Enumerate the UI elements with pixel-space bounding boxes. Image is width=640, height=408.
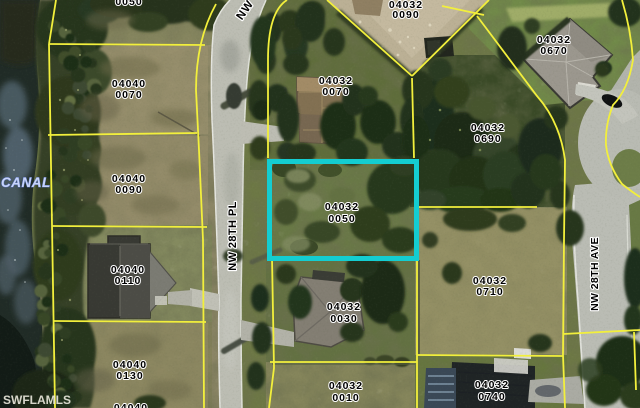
svg-text:04032: 04032	[327, 301, 361, 313]
svg-text:04032: 04032	[329, 380, 363, 392]
svg-text:0010: 0010	[332, 392, 359, 404]
svg-text:0740: 0740	[478, 391, 505, 403]
svg-text:0050: 0050	[115, 0, 142, 8]
svg-text:04040: 04040	[114, 402, 148, 408]
svg-text:0090: 0090	[392, 9, 419, 21]
svg-text:0030: 0030	[330, 313, 357, 325]
svg-text:SWFLAMLS: SWFLAMLS	[3, 393, 71, 407]
svg-text:0130: 0130	[116, 370, 143, 382]
svg-text:04032: 04032	[475, 379, 509, 391]
svg-text:0070: 0070	[322, 86, 349, 98]
svg-text:04032: 04032	[325, 201, 359, 213]
svg-text:0710: 0710	[476, 286, 503, 298]
svg-text:0670: 0670	[540, 45, 567, 57]
svg-text:0690: 0690	[474, 133, 501, 145]
svg-text:NW 28TH PL: NW 28TH PL	[227, 201, 239, 270]
svg-text:NW 28TH AVE: NW 28TH AVE	[589, 237, 601, 311]
svg-text:0090: 0090	[115, 184, 142, 196]
svg-text:0070: 0070	[115, 89, 142, 101]
svg-text:0110: 0110	[115, 275, 142, 287]
svg-text:0050: 0050	[328, 213, 355, 225]
svg-text:CANAL: CANAL	[1, 175, 51, 190]
